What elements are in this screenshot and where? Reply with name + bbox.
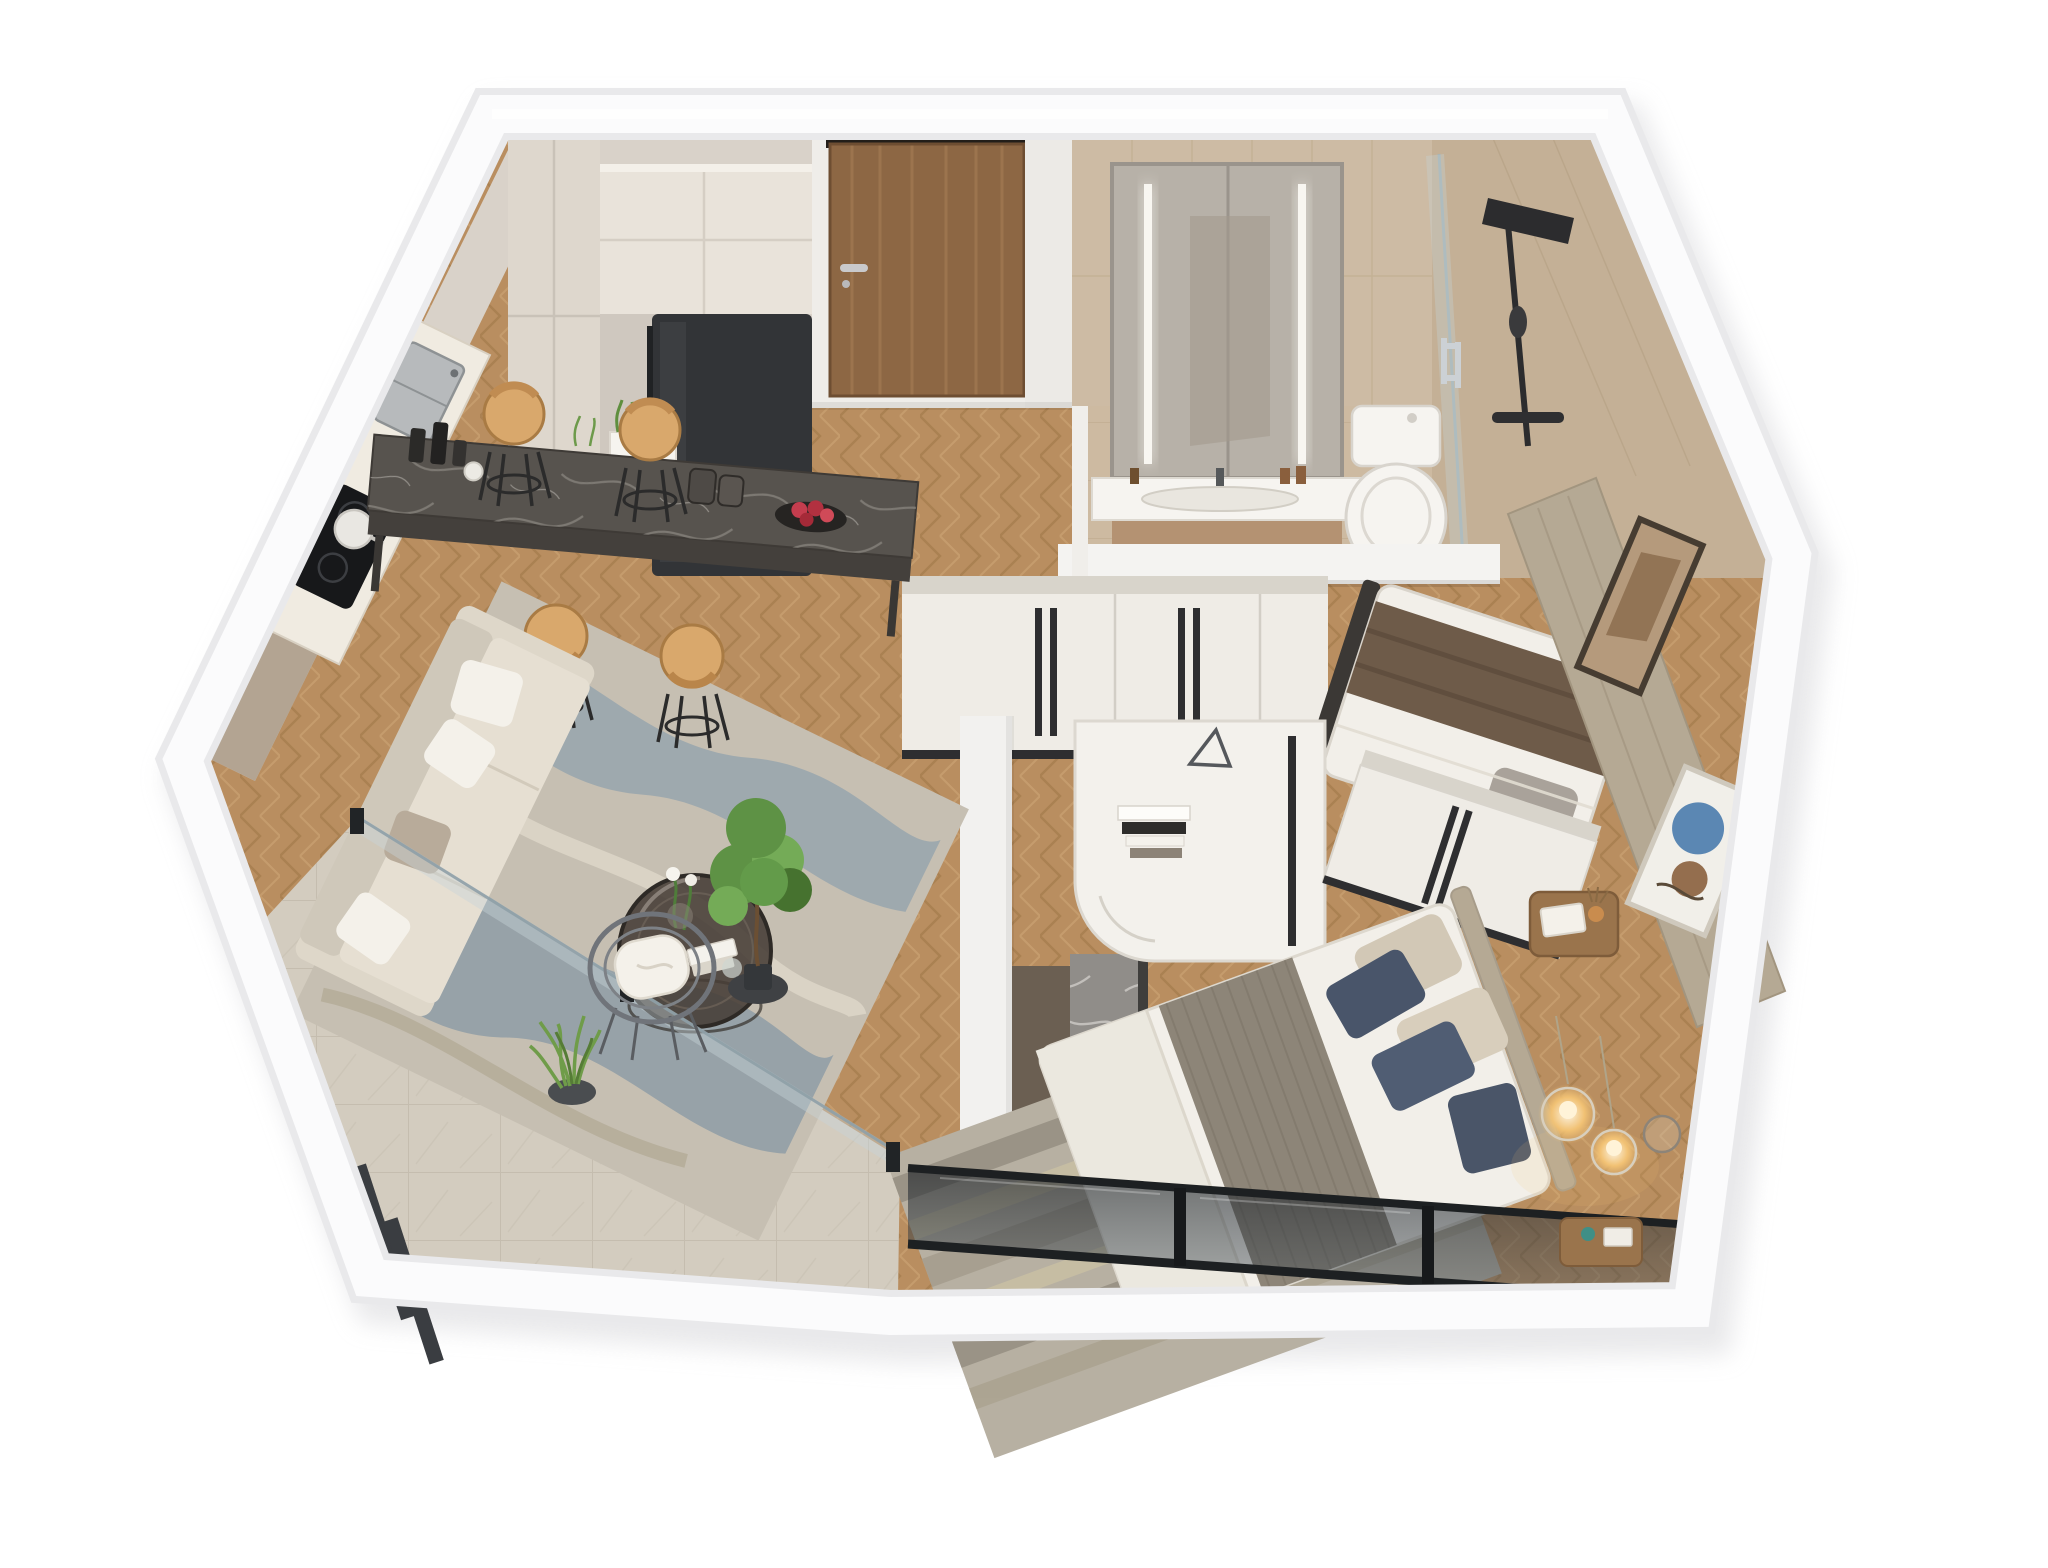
- nightstand: [1530, 887, 1618, 956]
- bottles: [1280, 468, 1290, 484]
- master-desk: [1075, 721, 1325, 961]
- upper-cabinets: [600, 164, 812, 314]
- magazine: [1540, 903, 1585, 937]
- entry-door: [830, 144, 1024, 396]
- diffuser: [1588, 906, 1604, 922]
- mirror-cabinet: [1112, 164, 1342, 478]
- wardrobe-handle: [1035, 608, 1042, 736]
- room-entry: [812, 134, 1075, 410]
- glass-dome: [722, 958, 742, 978]
- floor-plan-render: [40, 16, 2048, 1552]
- nightstand-foot: [1560, 1218, 1642, 1266]
- door-handle: [840, 264, 868, 272]
